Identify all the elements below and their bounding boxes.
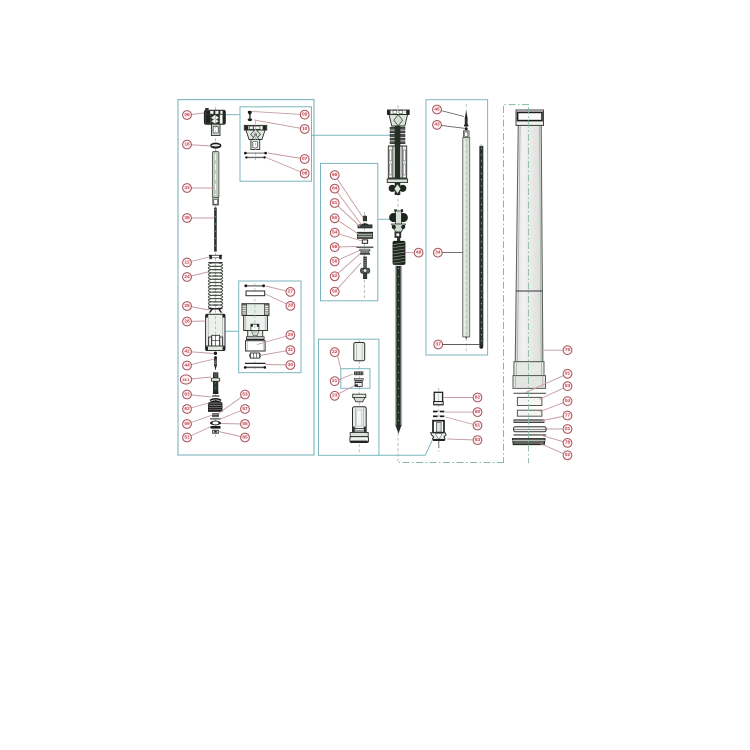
svg-text:56: 56 (332, 258, 338, 264)
svg-text:78: 78 (565, 440, 571, 446)
svg-text:03: 03 (565, 383, 571, 389)
svg-text:66: 66 (332, 172, 338, 178)
svg-text:75: 75 (565, 347, 571, 353)
svg-text:06: 06 (184, 112, 190, 118)
svg-text:44: 44 (184, 362, 190, 368)
svg-text:50: 50 (332, 289, 338, 295)
svg-text:33: 33 (184, 185, 190, 191)
svg-text:60: 60 (332, 215, 338, 221)
svg-text:28: 28 (288, 303, 294, 309)
svg-text:48: 48 (416, 249, 422, 255)
svg-text:27: 27 (288, 289, 294, 295)
svg-text:24: 24 (184, 274, 190, 280)
svg-text:52: 52 (332, 273, 338, 279)
svg-text:12: 12 (184, 259, 190, 265)
svg-text:65: 65 (242, 434, 248, 440)
svg-text:22: 22 (332, 349, 338, 355)
svg-text:58: 58 (332, 244, 338, 250)
svg-text:59: 59 (184, 421, 190, 427)
svg-text:83: 83 (475, 437, 481, 443)
svg-text:63: 63 (184, 391, 190, 397)
svg-text:82: 82 (475, 394, 481, 400)
svg-text:55: 55 (242, 421, 248, 427)
svg-text:34: 34 (435, 249, 441, 255)
svg-text:43: 43 (434, 122, 440, 128)
svg-text:42: 42 (184, 348, 190, 354)
svg-text:10: 10 (302, 126, 308, 132)
svg-text:30: 30 (288, 362, 294, 368)
svg-text:51: 51 (184, 434, 190, 440)
svg-text:45: 45 (434, 106, 440, 112)
svg-text:48.1: 48.1 (182, 378, 189, 382)
svg-text:01: 01 (565, 426, 571, 432)
svg-text:29: 29 (288, 332, 294, 338)
svg-text:25: 25 (184, 303, 190, 309)
svg-text:26: 26 (184, 318, 190, 324)
svg-text:80: 80 (475, 409, 481, 415)
svg-text:09: 09 (302, 112, 308, 118)
svg-text:54: 54 (332, 230, 338, 236)
svg-text:04: 04 (565, 398, 571, 404)
svg-text:36: 36 (184, 215, 190, 221)
svg-text:91: 91 (565, 371, 571, 377)
svg-text:37: 37 (436, 341, 442, 347)
svg-text:57: 57 (242, 406, 248, 412)
svg-text:53: 53 (242, 391, 248, 397)
svg-text:16: 16 (184, 141, 190, 147)
svg-text:02: 02 (565, 452, 571, 458)
svg-text:81: 81 (475, 422, 481, 428)
svg-text:61: 61 (332, 200, 338, 206)
svg-text:77: 77 (565, 412, 571, 418)
svg-text:21: 21 (332, 378, 338, 384)
svg-text:08: 08 (302, 170, 308, 176)
svg-text:07: 07 (302, 156, 308, 162)
svg-text:31: 31 (288, 347, 294, 353)
svg-text:64: 64 (332, 185, 338, 191)
svg-text:23: 23 (332, 393, 338, 399)
svg-text:62: 62 (184, 406, 190, 412)
